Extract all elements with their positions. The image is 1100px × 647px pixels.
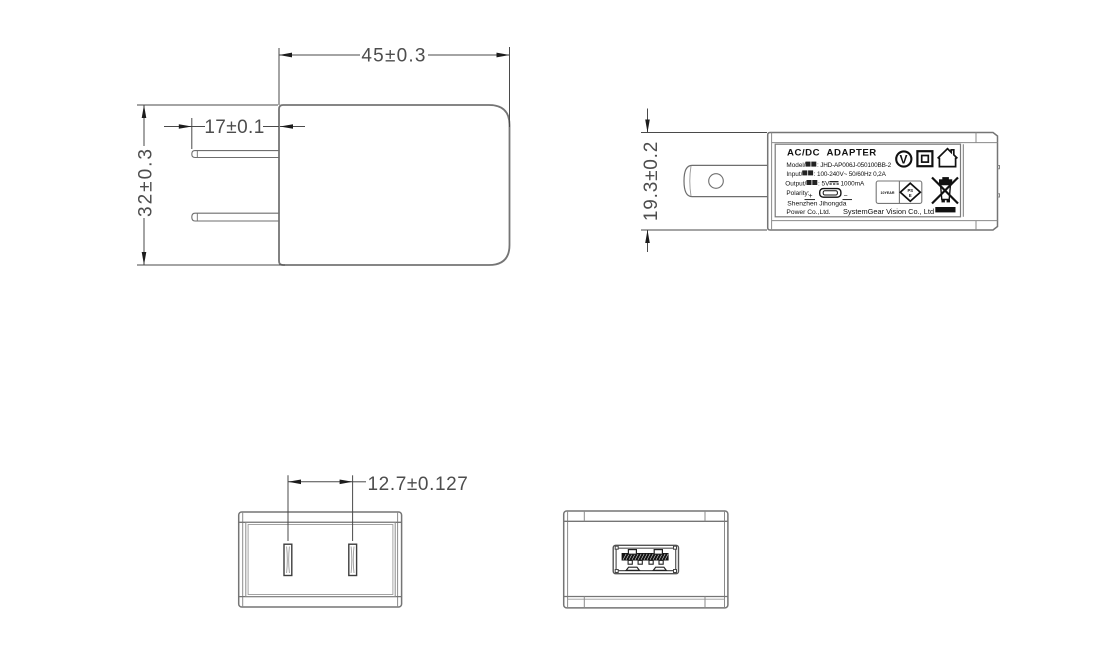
svg-text:19.3±0.2: 19.3±0.2 — [641, 141, 662, 221]
svg-text:Model/: Model/ — [786, 162, 805, 169]
svg-text:−: − — [844, 193, 848, 200]
svg-text:+: + — [809, 193, 813, 200]
svg-text:10YEAR: 10YEAR — [881, 191, 895, 195]
svg-text:1000mA: 1000mA — [841, 180, 866, 187]
svg-text:12.7±0.127: 12.7±0.127 — [368, 474, 469, 495]
svg-text:AC/DC ADAPTER: AC/DC ADAPTER — [787, 148, 877, 159]
svg-text:32±0.3: 32±0.3 — [136, 147, 157, 217]
svg-text:Output/: Output/ — [785, 180, 806, 187]
svg-text:45±0.3: 45±0.3 — [361, 46, 426, 67]
svg-text:17±0.1: 17±0.1 — [204, 117, 264, 138]
svg-text:: 5V: : 5V — [818, 180, 830, 187]
svg-text:Input/: Input/ — [786, 171, 802, 178]
svg-text:SystemGear Vision Co., Ltd: SystemGear Vision Co., Ltd — [843, 207, 934, 216]
svg-text:: 100-240V~ 50/60Hz 0,2A: : 100-240V~ 50/60Hz 0,2A — [814, 171, 887, 178]
svg-text:Power Co.,Ltd.: Power Co.,Ltd. — [786, 209, 830, 216]
svg-text:Polarity:: Polarity: — [786, 190, 809, 197]
svg-text:Shenzhen Jihongda: Shenzhen Jihongda — [787, 201, 846, 208]
svg-text:V: V — [899, 152, 907, 166]
svg-text:E: E — [909, 193, 912, 198]
svg-text:: JHD-AP006J-050100BB-2: : JHD-AP006J-050100BB-2 — [817, 162, 892, 169]
